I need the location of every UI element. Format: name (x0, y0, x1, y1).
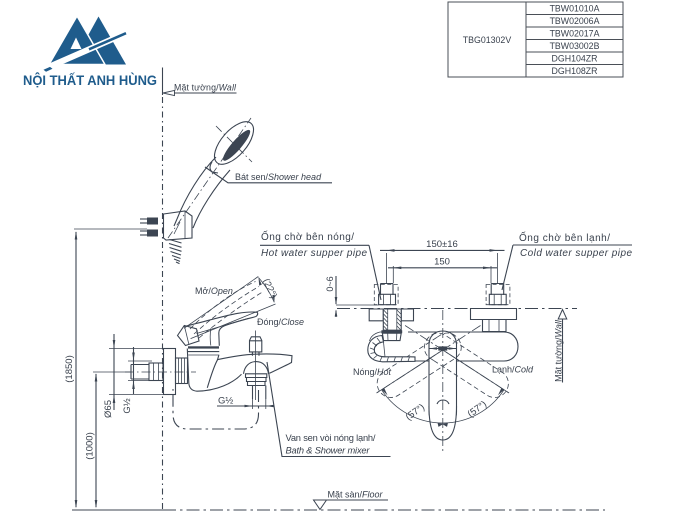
svg-text:Cold water supper pipe: Cold water supper pipe (520, 248, 632, 259)
svg-text:TBW02017A: TBW02017A (550, 29, 600, 39)
svg-text:TBW02006A: TBW02006A (550, 16, 600, 26)
svg-text:Lạnh/Cold: Lạnh/Cold (492, 365, 534, 375)
svg-text:Nóng/Hot: Nóng/Hot (353, 367, 392, 377)
svg-text:150: 150 (434, 257, 450, 268)
svg-text:G½: G½ (218, 396, 233, 407)
svg-text:Mặt sàn/Floor: Mặt sàn/Floor (328, 490, 384, 500)
svg-text:TBG01302V: TBG01302V (463, 35, 512, 45)
svg-text:DGH108ZR: DGH108ZR (552, 66, 598, 76)
svg-text:Bath & Shower mixer: Bath & Shower mixer (286, 446, 371, 456)
svg-text:Van sen vòi nóng lạnh/: Van sen vòi nóng lạnh/ (286, 433, 376, 443)
svg-text:(1850): (1850) (64, 355, 75, 382)
svg-text:DGH104ZR: DGH104ZR (552, 54, 598, 64)
svg-text:TBW03002B: TBW03002B (550, 41, 600, 51)
svg-text:TBW01010A: TBW01010A (550, 4, 600, 14)
svg-text:(1000): (1000) (85, 432, 96, 459)
svg-text:Ống chờ bên nóng/: Ống chờ bên nóng/ (261, 229, 354, 243)
svg-text:150±16: 150±16 (426, 239, 458, 250)
svg-text:Bát sen/Shower head: Bát sen/Shower head (235, 172, 322, 182)
svg-text:Ø65: Ø65 (103, 400, 114, 418)
svg-text:Mặt tường/Wall: Mặt tường/Wall (554, 319, 564, 382)
svg-text:0~6: 0~6 (325, 276, 335, 291)
svg-text:Hot water supper pipe: Hot water supper pipe (261, 248, 367, 259)
svg-text:NỘI THẤT ANH HÙNG: NỘI THẤT ANH HÙNG (23, 71, 157, 88)
svg-text:Ống chờ bên lạnh/: Ống chờ bên lạnh/ (519, 230, 610, 244)
svg-text:Mặt tường/Wall: Mặt tường/Wall (174, 83, 237, 93)
svg-text:Đóng/Close: Đóng/Close (257, 317, 304, 327)
svg-text:Mở/Open: Mở/Open (195, 286, 233, 296)
svg-text:G½: G½ (122, 398, 133, 413)
